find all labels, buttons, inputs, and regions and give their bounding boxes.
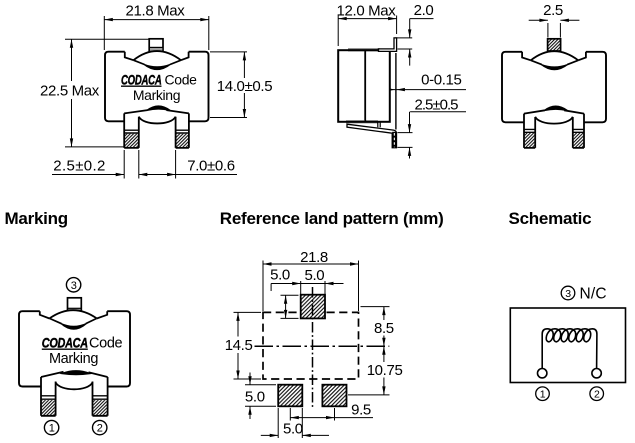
svg-text:3: 3	[565, 288, 571, 300]
svg-text:7.0±0.6: 7.0±0.6	[187, 158, 235, 175]
svg-text:5.0: 5.0	[270, 267, 290, 284]
svg-text:Marking: Marking	[133, 87, 180, 103]
svg-text:5.0: 5.0	[245, 389, 265, 406]
svg-text:3: 3	[71, 280, 77, 292]
svg-text:14.5: 14.5	[225, 337, 253, 354]
svg-text:1: 1	[49, 423, 55, 435]
svg-text:1: 1	[540, 389, 546, 401]
svg-text:Schematic: Schematic	[509, 209, 592, 228]
svg-text:10.75: 10.75	[367, 362, 403, 379]
svg-text:2.5: 2.5	[543, 2, 563, 19]
svg-text:N/C: N/C	[580, 286, 607, 303]
svg-text:2.5±0.5: 2.5±0.5	[415, 97, 459, 114]
svg-text:22.5 Max: 22.5 Max	[40, 83, 100, 100]
svg-text:2: 2	[97, 423, 103, 435]
svg-text:2.5±0.2: 2.5±0.2	[53, 158, 105, 175]
svg-text:8.5: 8.5	[374, 320, 394, 337]
svg-text:21.8 Max: 21.8 Max	[126, 3, 186, 20]
svg-text:5.0: 5.0	[304, 267, 324, 284]
svg-text:21.8: 21.8	[300, 249, 328, 266]
svg-text:CODACA: CODACA	[42, 335, 88, 351]
svg-text:5.0: 5.0	[283, 421, 303, 438]
svg-text:2: 2	[594, 389, 600, 401]
svg-text:Marking: Marking	[49, 351, 98, 367]
svg-text:0-0.15: 0-0.15	[421, 72, 461, 89]
svg-text:12.0 Max: 12.0 Max	[337, 3, 397, 20]
svg-text:Code: Code	[165, 71, 198, 87]
svg-text:2.0: 2.0	[414, 2, 434, 19]
svg-text:14.0±0.5: 14.0±0.5	[217, 78, 272, 95]
svg-text:9.5: 9.5	[351, 402, 371, 419]
svg-text:Code: Code	[89, 335, 123, 351]
svg-text:CODACA: CODACA	[121, 73, 162, 88]
svg-text:Reference land pattern (mm): Reference land pattern (mm)	[220, 209, 444, 228]
svg-text:Marking: Marking	[5, 209, 68, 228]
